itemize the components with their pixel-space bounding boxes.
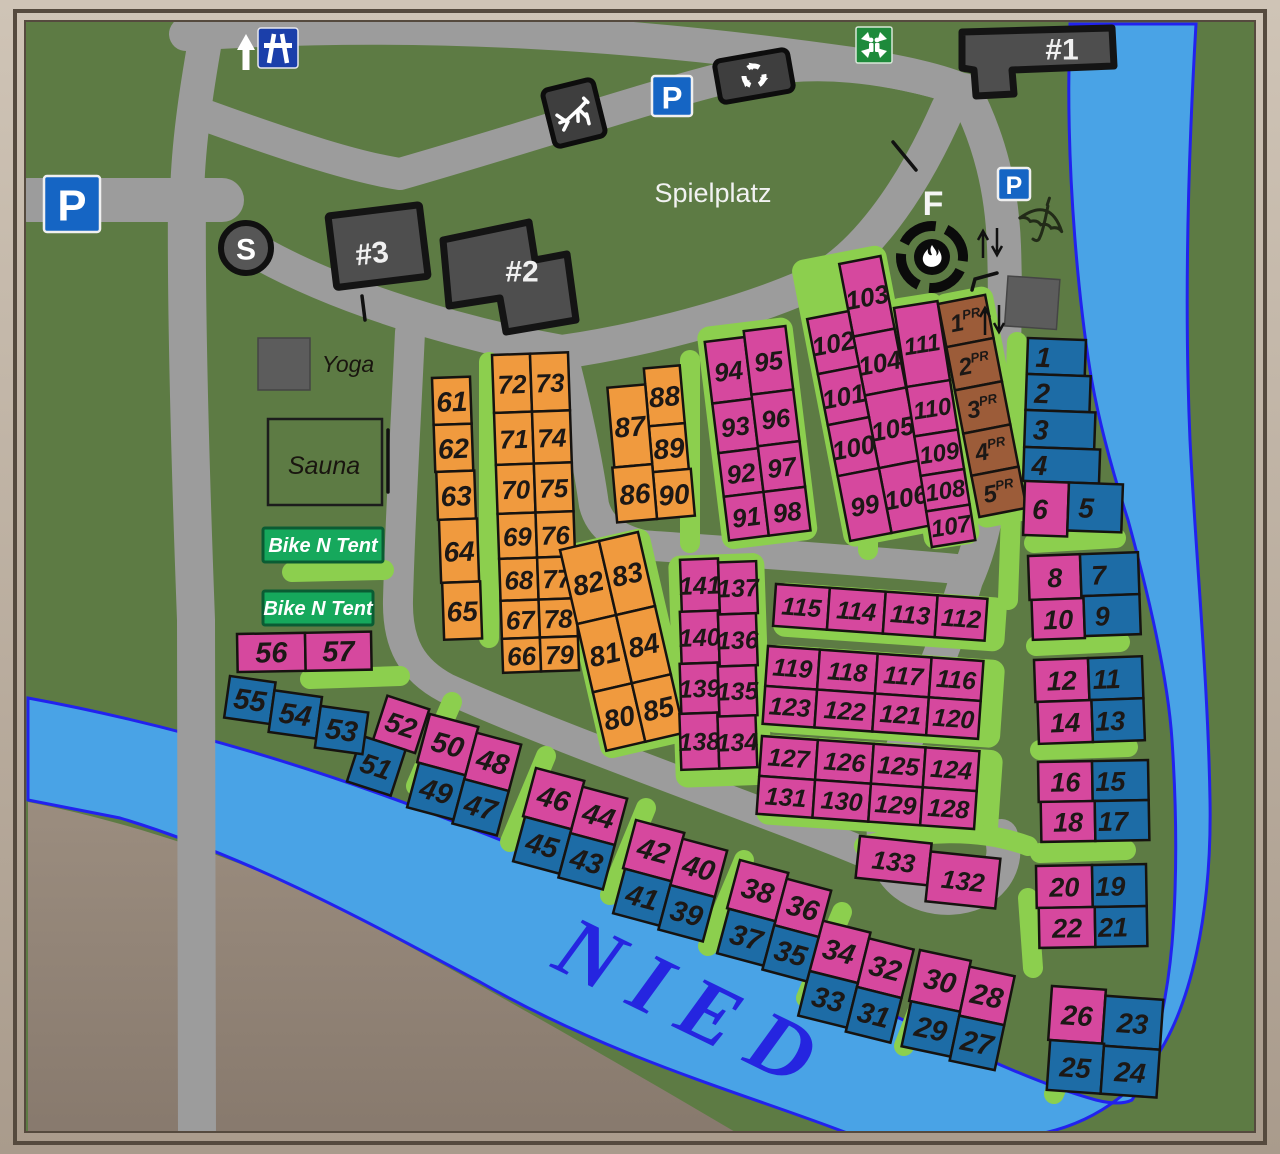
plot-block-B56: 5657 [237, 632, 372, 672]
plot-label-67: 67 [505, 605, 536, 636]
plot-label-76: 76 [540, 520, 570, 551]
plot-block-B: 7273717470756976687767786679 [492, 352, 579, 672]
bike-n-tent-1: Bike N Tent [263, 528, 383, 562]
plot-label-9: 9 [1094, 601, 1110, 632]
plot-label-72: 72 [497, 369, 527, 400]
plot-label-131: 131 [764, 782, 808, 813]
plot-label-2: 2 [1033, 378, 1051, 410]
plot-label-22: 22 [1051, 913, 1083, 944]
plot-label-24: 24 [1113, 1056, 1148, 1089]
bike-n-tent-2-label: Bike N Tent [263, 598, 374, 620]
plot-label-126: 126 [823, 747, 868, 778]
hedge [292, 570, 384, 572]
bike-n-tent-2: Bike N Tent [263, 591, 374, 625]
plot-block-R6: 26232524 [1045, 986, 1164, 1098]
hedge [1028, 898, 1033, 968]
plot-label-141: 141 [679, 571, 722, 600]
hedge [1036, 642, 1120, 646]
plot-block-M3: 127126125124131130129128 [757, 736, 980, 829]
plot-label-128: 128 [927, 794, 971, 825]
plot-label-14: 14 [1050, 707, 1081, 738]
plot-label-130: 130 [820, 786, 864, 817]
plot-label-54: 54 [277, 697, 313, 733]
plot-label-78: 78 [543, 603, 573, 634]
plot-block-R5: 20192221 [1036, 864, 1147, 948]
building-3-label: #3 [353, 236, 390, 273]
parking-sign-top: P [652, 76, 692, 116]
campsite-map: #1#2#3Bike N TentBike N Tent616263646572… [0, 0, 1280, 1154]
plot-label-88: 88 [648, 380, 682, 414]
small-building [1005, 276, 1060, 330]
plot-label-20: 20 [1048, 872, 1080, 903]
plot-block-R2: 87109 [1028, 552, 1141, 640]
plot-label-121: 121 [879, 700, 923, 731]
plot-label-115: 115 [781, 592, 824, 623]
parking-sign-right: P [998, 168, 1030, 200]
plot-label-90: 90 [657, 478, 691, 512]
plot-label-16: 16 [1050, 767, 1082, 798]
plot-5[interactable] [1067, 483, 1123, 533]
building-2-label: #2 [505, 256, 538, 289]
plot-label-15: 15 [1095, 766, 1127, 797]
plot-label-122: 122 [823, 696, 867, 727]
plot-label-94: 94 [712, 355, 745, 388]
plot-label-64: 64 [443, 536, 476, 568]
plot-label-23: 23 [1115, 1007, 1150, 1040]
plot-label-19: 19 [1095, 871, 1126, 902]
plot-label-26: 26 [1059, 999, 1094, 1032]
plot-label-75: 75 [539, 473, 569, 504]
plot-block-M2: 119118117116123122121120 [763, 646, 984, 739]
plot-label-63: 63 [440, 480, 473, 512]
plot-label-89: 89 [652, 432, 686, 466]
plot-9[interactable] [1083, 594, 1140, 636]
plot-label-30: 30 [921, 963, 959, 1001]
plot-label-132: 132 [940, 864, 987, 898]
plot-label-92: 92 [725, 457, 758, 490]
plot-label-18: 18 [1053, 807, 1084, 838]
campsite-map-canvas: #1#2#3Bike N TentBike N Tent616263646572… [0, 0, 1280, 1154]
plot-label-79: 79 [545, 639, 575, 670]
plot-block-C: 8889908786 [604, 365, 695, 522]
dog-area-sign-icon [542, 79, 606, 148]
building-1-label: #1 [1045, 34, 1078, 67]
plot-label-13: 13 [1095, 706, 1126, 737]
plot-label-133: 133 [870, 844, 917, 878]
plot-label-70: 70 [501, 474, 531, 505]
plot-label-123: 123 [768, 692, 812, 723]
plot-label-135: 135 [716, 677, 760, 706]
campfire-label: F [923, 185, 944, 223]
plot-label-10: 10 [1043, 604, 1074, 635]
svg-text:P: P [57, 182, 86, 231]
hedge [1034, 538, 1116, 543]
spielplatz-label: Spielplatz [654, 178, 771, 208]
plot-label-11: 11 [1092, 664, 1121, 695]
plot-label-62: 62 [437, 433, 470, 465]
plot-label-112: 112 [940, 604, 982, 635]
plot-label-29: 29 [911, 1011, 950, 1049]
building-3: #3 [328, 205, 428, 288]
plot-label-120: 120 [932, 704, 976, 735]
plot-label-12: 12 [1046, 666, 1077, 697]
plot-label-134: 134 [716, 728, 759, 757]
svg-text:P: P [1006, 172, 1023, 200]
plot-label-68: 68 [504, 565, 534, 596]
plot-label-137: 137 [717, 574, 761, 603]
sauna-label: Sauna [288, 452, 360, 480]
plot-label-56: 56 [255, 637, 289, 670]
plot-label-91: 91 [730, 501, 762, 534]
motorway-sign-icon [258, 28, 298, 68]
plot-label-96: 96 [759, 402, 792, 435]
plot-label-118: 118 [826, 657, 868, 688]
plot-label-74: 74 [537, 422, 567, 453]
bike-n-tent-1-label: Bike N Tent [268, 535, 379, 557]
plot-label-114: 114 [835, 596, 877, 627]
plot-label-113: 113 [889, 600, 931, 631]
plot-label-136: 136 [717, 626, 761, 655]
plot-label-66: 66 [507, 641, 537, 672]
plot-label-69: 69 [502, 521, 532, 552]
plot-label-17: 17 [1098, 806, 1131, 837]
plot-label-5: 5 [1078, 492, 1095, 524]
plot-label-6: 6 [1032, 494, 1049, 526]
plot-7[interactable] [1080, 552, 1139, 596]
plot-label-111: 111 [902, 329, 942, 361]
hedge [1040, 747, 1128, 750]
plot-label-8: 8 [1047, 563, 1063, 594]
road-left-vertical [187, 196, 197, 1140]
parking-sign-left: P [44, 176, 100, 232]
plot-label-71: 71 [499, 424, 529, 455]
plot-label-25: 25 [1058, 1051, 1093, 1084]
hedge [1040, 850, 1126, 853]
plot-label-93: 93 [719, 410, 752, 443]
plot-label-21: 21 [1097, 912, 1129, 943]
yoga-label: Yoga [322, 351, 374, 377]
plot-label-125: 125 [876, 751, 921, 782]
plot-label-138: 138 [678, 728, 721, 757]
plot-label-140: 140 [678, 623, 721, 652]
plot-label-129: 129 [874, 790, 918, 821]
map-layers: #1#2#3Bike N TentBike N Tent616263646572… [26, 22, 1254, 1154]
plot-label-116: 116 [935, 665, 978, 696]
plot-label-98: 98 [771, 495, 804, 528]
plot-label-87: 87 [613, 410, 648, 444]
plot-label-95: 95 [752, 345, 785, 378]
plot-label-65: 65 [446, 596, 479, 628]
plot-label-1: 1 [1035, 342, 1052, 374]
plot-label-4: 4 [1030, 450, 1048, 482]
plot-label-61: 61 [436, 386, 468, 418]
plot-label-55: 55 [232, 683, 269, 719]
plot-label-119: 119 [772, 653, 814, 684]
plot-label-127: 127 [767, 743, 812, 774]
plot-label-124: 124 [929, 755, 973, 786]
plot-block-R4: 16151817 [1038, 760, 1149, 842]
hedge [310, 676, 400, 679]
plot-block-M4: 141137140136139135138134 [672, 557, 766, 770]
plot-label-139: 139 [678, 674, 721, 703]
plot-label-57: 57 [322, 636, 357, 669]
plot-label-3: 3 [1032, 414, 1049, 446]
plot-label-117: 117 [882, 661, 925, 692]
yoga-building [258, 338, 310, 390]
plot-label-86: 86 [618, 477, 652, 511]
plot-block-R3: 12111413 [1034, 656, 1145, 744]
plot-label-53: 53 [323, 713, 359, 749]
roundabout-marker: S [221, 223, 271, 273]
plot-label-97: 97 [765, 451, 799, 484]
plot-label-73: 73 [535, 367, 565, 398]
assembly-point-sign-icon [856, 27, 892, 63]
svg-text:S: S [236, 234, 256, 267]
svg-text:P: P [662, 81, 683, 116]
